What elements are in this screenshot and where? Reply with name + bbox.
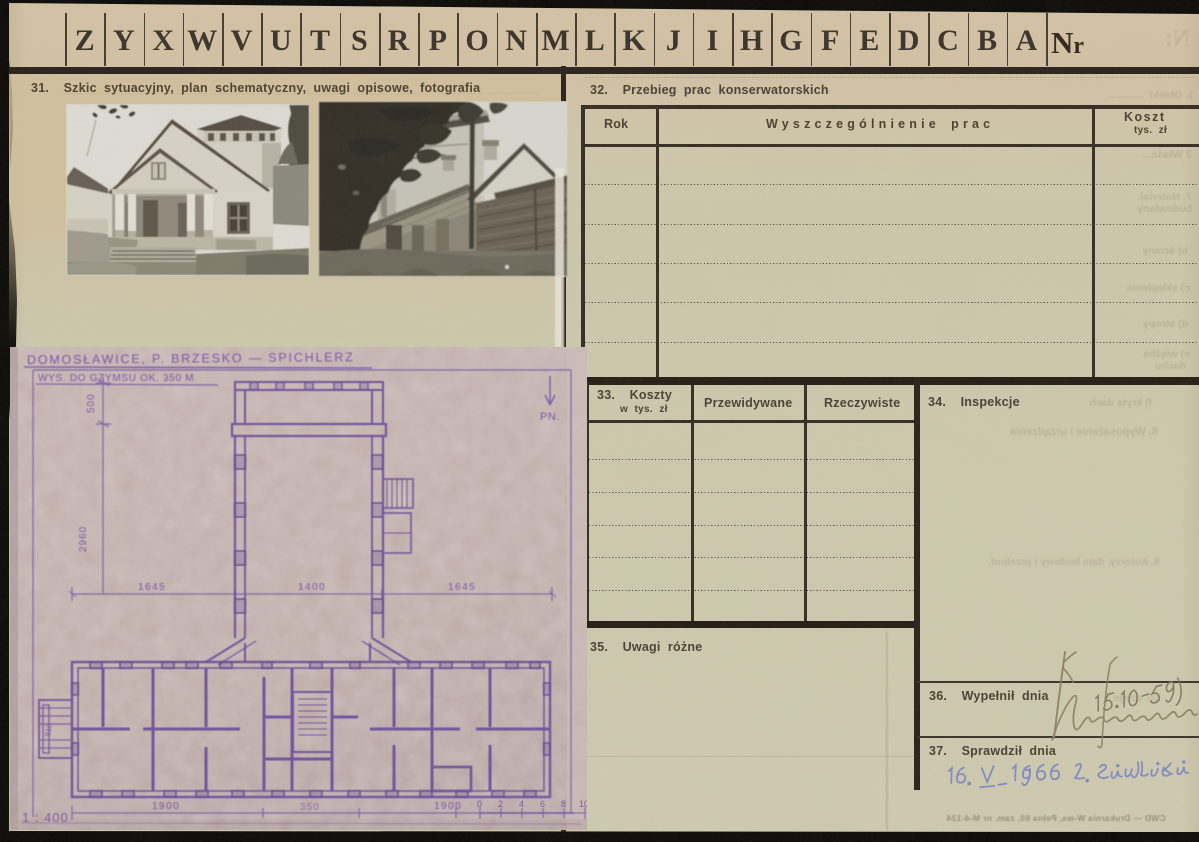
svg-text:0: 0 [477,799,482,809]
svg-text:WYS. DO GZYMSU OK. 350 M: WYS. DO GZYMSU OK. 350 M [38,373,194,384]
svg-text:2: 2 [498,799,503,809]
svg-text:1900: 1900 [434,801,462,812]
svg-text:1645: 1645 [448,582,476,593]
svg-text:1900: 1900 [152,801,180,812]
svg-text:1400: 1400 [298,582,326,593]
svg-text:1 : 400: 1 : 400 [22,810,69,825]
svg-text:DOMOSŁAWICE, P. BRZESKO — SPIC: DOMOSŁAWICE, P. BRZESKO — SPICHLERZ [27,350,355,367]
svg-text:2960: 2960 [78,526,89,552]
svg-text:350: 350 [300,802,320,813]
svg-text:4: 4 [519,799,524,809]
svg-text:500: 500 [86,393,97,413]
svg-text:10: 10 [579,799,587,809]
svg-text:1645: 1645 [138,582,166,593]
svg-text:8: 8 [561,799,566,809]
svg-text:6: 6 [540,799,545,809]
svg-text:PN.: PN. [540,411,560,423]
